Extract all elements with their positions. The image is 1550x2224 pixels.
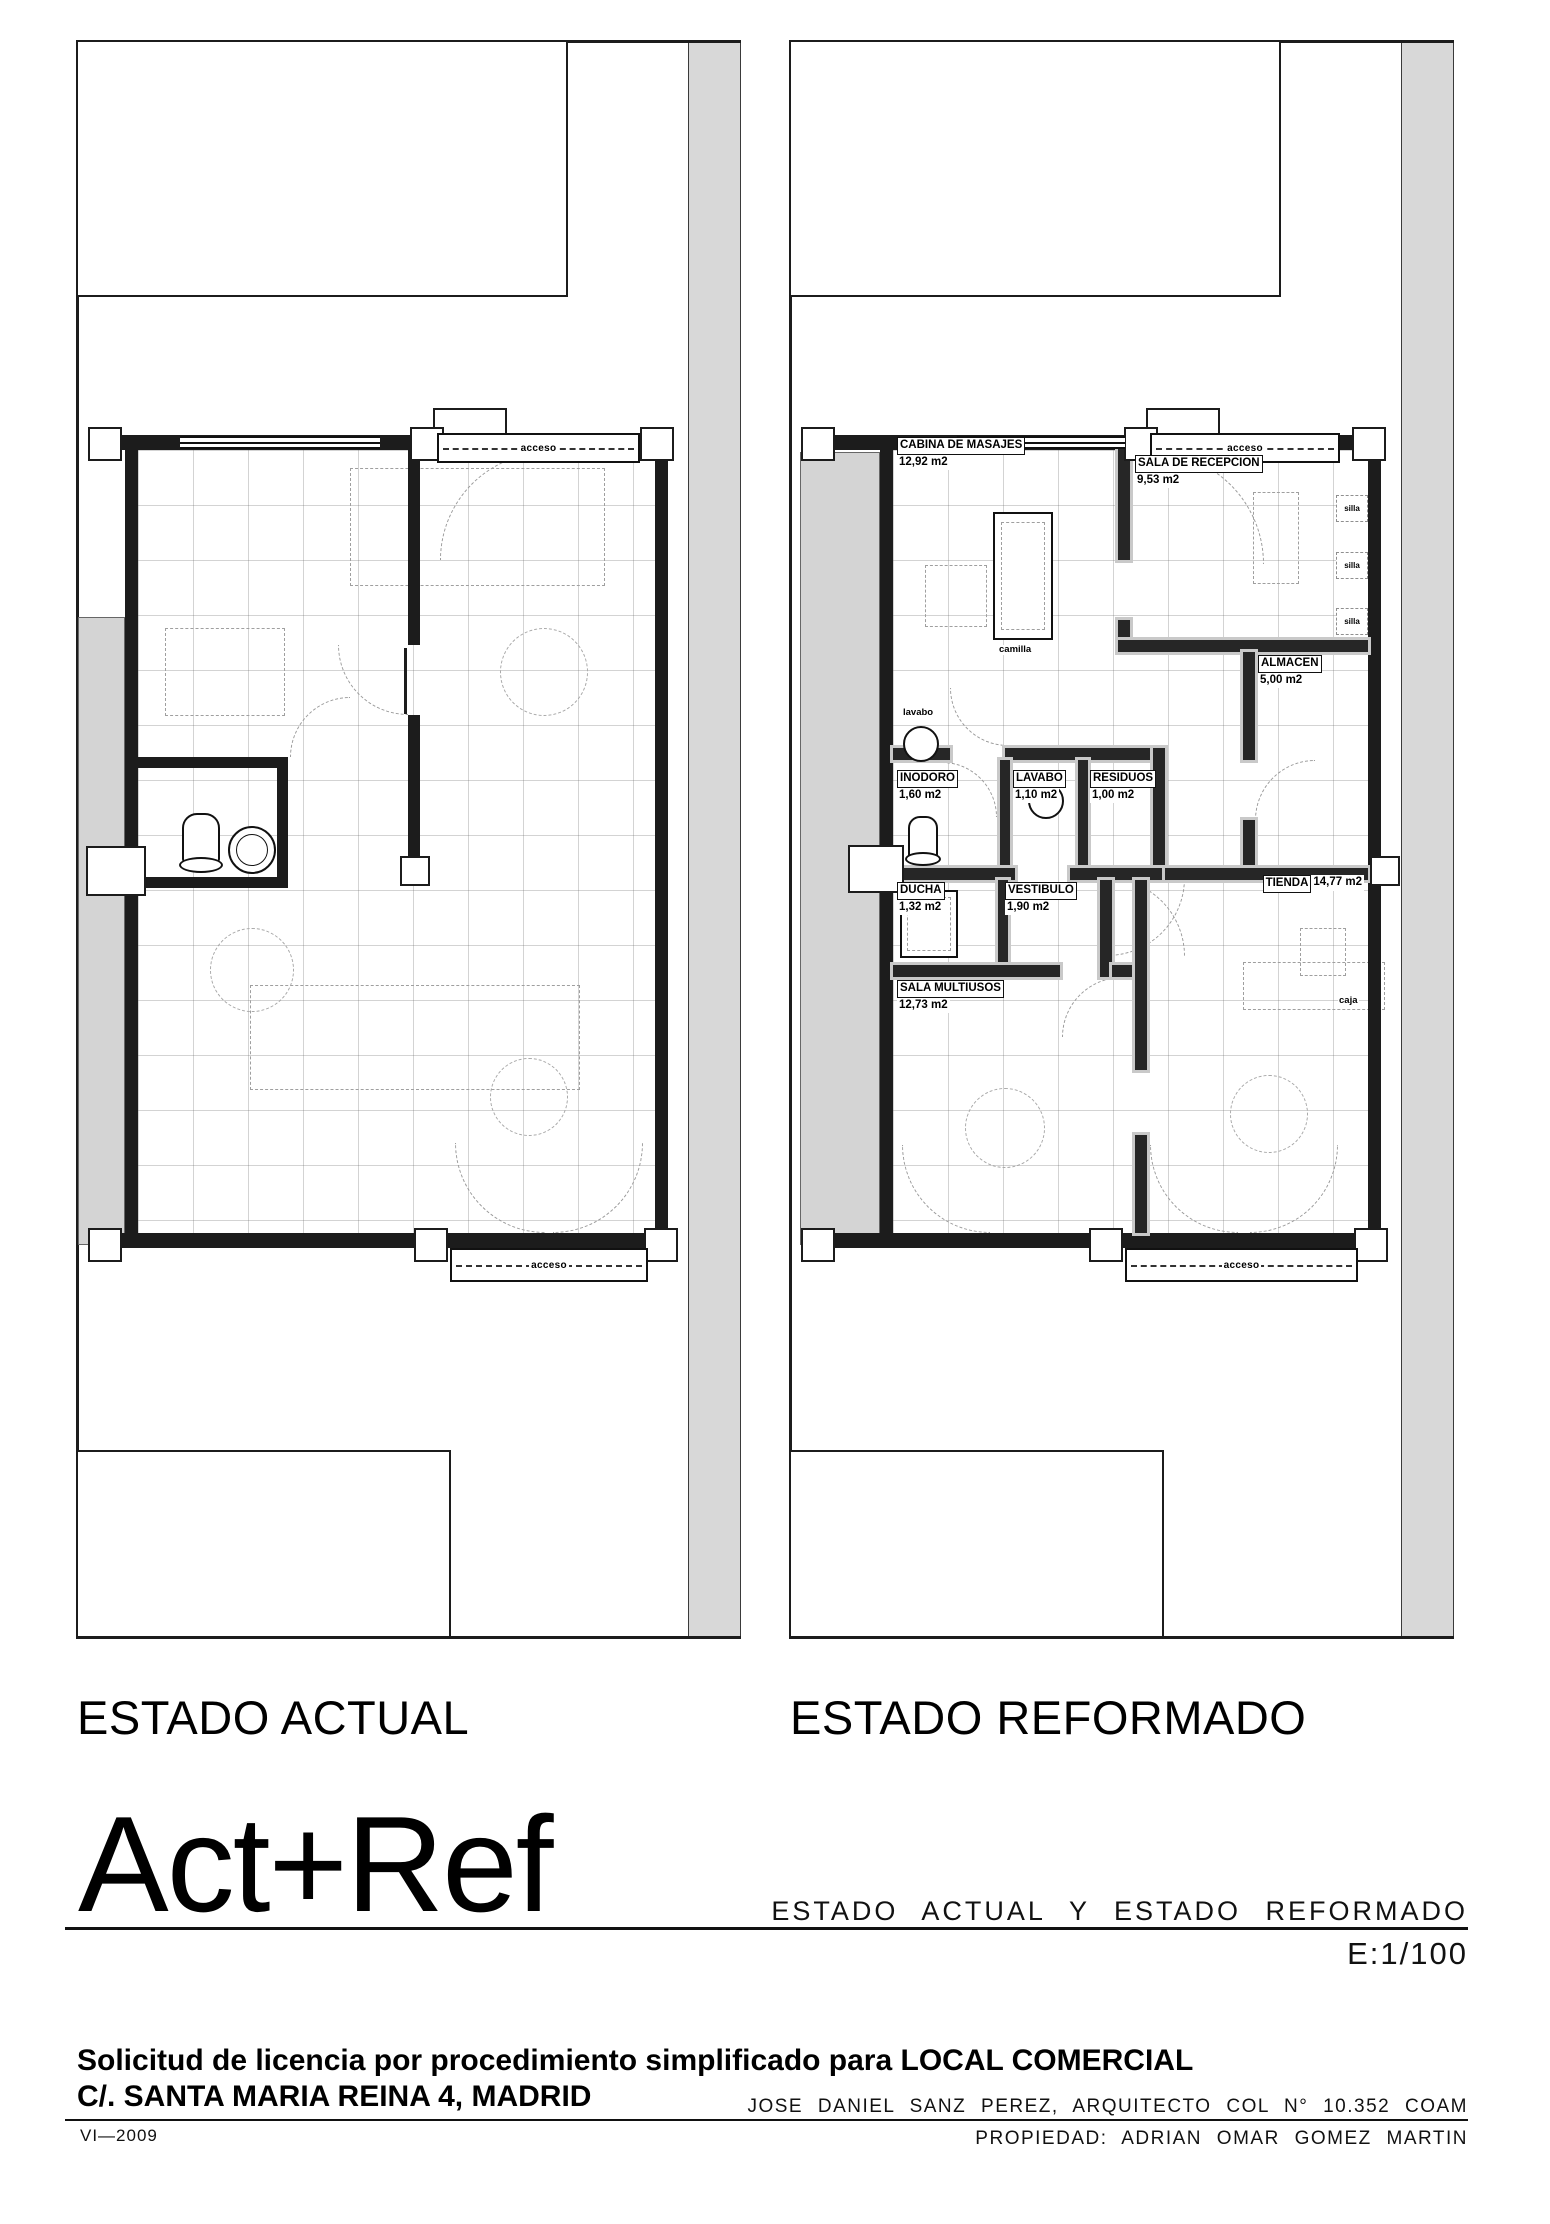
toilet-icon — [182, 813, 220, 863]
actual-site-boundary-bottom — [76, 1636, 741, 1639]
partition-under-cabina — [1005, 748, 1153, 760]
partition-multiusos-top — [893, 965, 1060, 977]
room-area: 14,77 m2 — [1311, 875, 1364, 891]
room-area: 1,32 m2 — [897, 900, 943, 916]
reformado-site-boundary-bottom — [789, 1636, 1454, 1639]
date-tag: VI—2009 — [80, 2126, 158, 2146]
toilet-base-icon — [905, 852, 941, 866]
reformado-building-above — [789, 40, 1281, 297]
actual-pier — [644, 1228, 678, 1262]
rule-titleblock — [65, 2119, 1468, 2121]
partition-residuos-tienda — [1153, 748, 1165, 868]
request-line-1: Solicitud de licencia por procedimiento … — [77, 2044, 1193, 2077]
reformado-pier — [1352, 427, 1386, 461]
partition-cabina-recepcion — [1118, 448, 1130, 560]
partition-under-aseos — [893, 868, 1015, 880]
rule-title — [65, 1927, 1468, 1930]
actual-pier — [640, 427, 674, 461]
partition-almacen-left — [1243, 820, 1255, 868]
partition-vestibulo-tienda — [1100, 880, 1112, 977]
silla-label: silla — [1344, 618, 1360, 626]
partition-inodoro-lavabo — [1000, 760, 1010, 868]
room-name: SALA DE RECEPCION — [1135, 455, 1263, 473]
room-label-multiusos: SALA MULTIUSOS 12,73 m2 — [897, 980, 1004, 1013]
actual-door-leaf — [404, 648, 407, 714]
actual-access-door-top: acceso — [437, 433, 640, 463]
actual-wall-right — [655, 435, 668, 1248]
actual-bathroom-wall-right — [277, 757, 288, 888]
room-name: SALA MULTIUSOS — [897, 980, 1004, 998]
reformado-sidewalk-strip — [1401, 40, 1454, 1638]
request-line-2: C/. SANTA MARIA REINA 4, MADRID — [77, 2080, 591, 2113]
actual-bathroom-wall-top — [138, 757, 288, 768]
silla-chair: silla — [1336, 495, 1368, 522]
actual-access-bottom-label: acceso — [529, 1260, 569, 1271]
room-name: DUCHA — [897, 882, 945, 900]
drawing-scale: E:1/100 — [1168, 1936, 1468, 1972]
actual-entry-canopy — [433, 408, 507, 436]
actual-building-below — [76, 1450, 451, 1638]
dashed-circle — [490, 1058, 568, 1136]
dashed-circle — [1230, 1075, 1308, 1153]
actual-pier — [88, 1228, 122, 1262]
silla-label: silla — [1344, 562, 1360, 570]
room-name: ALMACEN — [1258, 655, 1322, 673]
reformado-pier — [1370, 856, 1400, 886]
partition-almacen-left — [1243, 652, 1255, 760]
actual-pier — [400, 856, 430, 886]
partition-lavabo-residuos — [1078, 760, 1088, 868]
reformado-pier — [1354, 1228, 1388, 1262]
reformado-access-bottom-label: acceso — [1222, 1260, 1262, 1271]
actual-bathroom-wall-bottom — [138, 877, 288, 888]
room-name: RESIDUOS — [1090, 770, 1156, 788]
actual-wall-left — [125, 435, 138, 1248]
room-area: 1,10 m2 — [1013, 788, 1059, 804]
room-label-recepcion: SALA DE RECEPCION 9,53 m2 — [1135, 455, 1263, 488]
reformado-wall-right — [1368, 435, 1381, 1248]
small-sink-icon — [903, 726, 939, 762]
dashed-outline — [165, 628, 285, 716]
room-area: 1,60 m2 — [897, 788, 943, 804]
toilet-base-icon — [179, 857, 223, 873]
sink-inner-icon — [236, 834, 268, 866]
title-estado-reformado: ESTADO REFORMADO — [790, 1694, 1306, 1741]
actual-partition-vertical — [408, 448, 420, 645]
actual-sidewalk-strip — [688, 40, 741, 1638]
partition-multiusos-tienda — [1135, 1135, 1147, 1233]
reformado-access-top-label: acceso — [1225, 443, 1265, 454]
actual-facade-window — [180, 436, 380, 449]
room-area: 9,53 m2 — [1135, 473, 1181, 489]
partition-multiusos-tienda — [1135, 880, 1147, 1070]
reformado-access-door-bottom: acceso — [1125, 1248, 1358, 1282]
room-label-residuos: RESIDUOS 1,00 m2 — [1090, 770, 1156, 803]
dashed-outline — [925, 565, 987, 627]
reformado-pier-bump — [848, 845, 904, 893]
room-name: LAVABO — [1013, 770, 1066, 788]
actual-site-boundary-top — [566, 40, 741, 43]
dashed-circle — [500, 628, 588, 716]
property-line: PROPIEDAD: ADRIAN OMAR GOMEZ MARTIN — [668, 2128, 1468, 2150]
title-act-ref: Act+Ref — [78, 1796, 552, 1932]
reformado-pier — [801, 1228, 835, 1262]
room-area: 12,92 m2 — [897, 455, 950, 471]
actual-building-above — [76, 40, 568, 297]
actual-pier — [88, 427, 122, 461]
drawing-name: ESTADO ACTUAL Y ESTADO REFORMADO — [700, 1896, 1468, 1927]
tienda-counter — [1243, 962, 1385, 1010]
actual-access-top-label: acceso — [519, 443, 559, 454]
silla-chair: silla — [1336, 552, 1368, 579]
camilla-inner — [1001, 522, 1045, 630]
partition-under-aseos — [1070, 868, 1165, 880]
actual-pier-bump — [86, 846, 146, 896]
actual-access-door-bottom: acceso — [450, 1248, 648, 1282]
room-label-almacen: ALMACEN 5,00 m2 — [1258, 655, 1322, 688]
reformado-pier — [801, 427, 835, 461]
architect-line: JOSE DANIEL SANZ PEREZ, ARQUITECTO COL N… — [568, 2096, 1468, 2118]
silla-label: silla — [1344, 505, 1360, 513]
actual-pier — [414, 1228, 448, 1262]
lavabo-tag: lavabo — [902, 708, 934, 718]
reformado-building-below — [789, 1450, 1164, 1638]
reformado-wall-left — [880, 435, 893, 1248]
actual-party-wall-gray — [78, 617, 125, 1245]
room-area: 5,00 m2 — [1258, 673, 1304, 689]
room-label-cabina: CABINA DE MASAJES 12,92 m2 — [897, 437, 1025, 470]
room-name: INODORO — [897, 770, 958, 788]
drawing-sheet: acceso acceso — [0, 0, 1550, 2224]
reformado-pier — [1089, 1228, 1123, 1262]
room-name: TIENDA — [1263, 875, 1312, 893]
room-label-tienda: TIENDA 14,77 m2 — [1262, 875, 1364, 893]
room-name: VESTIBULO — [1005, 882, 1077, 900]
room-label-ducha: DUCHA 1,32 m2 — [897, 882, 945, 915]
room-label-lavabo: LAVABO 1,10 m2 — [1013, 770, 1066, 803]
room-name: CABINA DE MASAJES — [897, 437, 1025, 455]
partition-recepcion-bottom — [1118, 640, 1368, 652]
silla-chair: silla — [1336, 608, 1368, 635]
title-estado-actual: ESTADO ACTUAL — [77, 1694, 469, 1741]
room-area: 1,90 m2 — [1005, 900, 1051, 916]
room-area: 12,73 m2 — [897, 998, 950, 1014]
actual-wall-bottom — [95, 1233, 668, 1248]
camilla-tag: camilla — [998, 645, 1032, 655]
caja-tag: caja — [1338, 996, 1359, 1006]
dashed-circle — [210, 928, 294, 1012]
room-label-inodoro: INODORO 1,60 m2 — [897, 770, 958, 803]
reformado-site-boundary-top — [1279, 40, 1454, 43]
room-area: 1,00 m2 — [1090, 788, 1136, 804]
room-label-vestibulo: VESTIBULO 1,90 m2 — [1005, 882, 1077, 915]
